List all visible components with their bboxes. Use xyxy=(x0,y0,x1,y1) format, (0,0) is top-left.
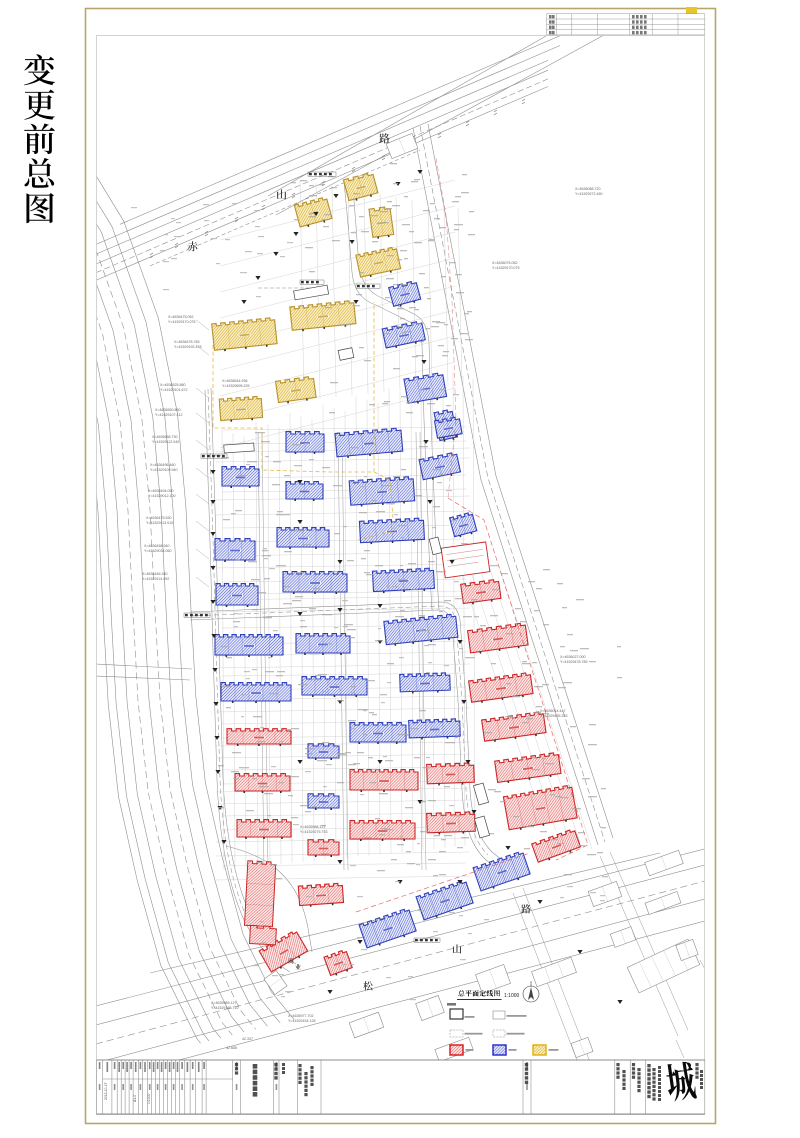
svg-text:42.337: 42.337 xyxy=(242,1037,253,1041)
svg-text:Y=41529695.225: Y=41529695.225 xyxy=(222,384,249,388)
svg-text:Y=41529107.412: Y=41529107.412 xyxy=(155,413,182,417)
svg-text:Y=41529478.789: Y=41529478.789 xyxy=(560,660,587,664)
svg-text:X=4635988.127: X=4635988.127 xyxy=(300,825,325,829)
svg-text:Y=41529101.672: Y=41529101.672 xyxy=(160,388,187,392)
svg-text:X=4635989.127: X=4635989.127 xyxy=(211,1001,236,1005)
svg-text:X=4636446.340: X=4636446.340 xyxy=(142,572,167,576)
svg-text:X=4636075.052: X=4636075.052 xyxy=(492,261,517,265)
svg-text:X=4636568.730: X=4636568.730 xyxy=(152,435,177,439)
svg-text:X=4636475.052: X=4636475.052 xyxy=(168,315,193,319)
svg-text:Y=41529170.075: Y=41529170.075 xyxy=(168,320,195,324)
svg-text:Y=41529109.940: Y=41529109.940 xyxy=(150,468,177,472)
svg-text:Y=41529272.460: Y=41529272.460 xyxy=(575,192,602,196)
svg-text:X=4636494.050: X=4636494.050 xyxy=(148,489,173,493)
svg-text:A1-0: A1-0 xyxy=(133,1095,137,1102)
svg-text:X=4636014.447: X=4636014.447 xyxy=(540,709,565,713)
svg-text:X=4636525.880: X=4636525.880 xyxy=(160,383,185,387)
svg-text:X=4636550.850: X=4636550.850 xyxy=(155,408,180,412)
svg-text:X=4636544.936: X=4636544.936 xyxy=(222,379,247,383)
svg-text:Y=41529012.100: Y=41529012.100 xyxy=(148,494,175,498)
svg-text:1:1000: 1:1000 xyxy=(504,993,520,999)
svg-text:Y=41529275.753: Y=41529275.753 xyxy=(300,830,327,834)
svg-text:1:1000: 1:1000 xyxy=(147,1094,151,1104)
svg-text:2012-10-17: 2012-10-17 xyxy=(104,1083,108,1100)
svg-text:Y=41529155.710: Y=41529155.710 xyxy=(211,1006,238,1010)
svg-text:X=4636088.720: X=4636088.720 xyxy=(575,187,600,191)
svg-text:42.685: 42.685 xyxy=(226,1046,237,1050)
svg-text:Y=41529113.010: Y=41529113.010 xyxy=(146,521,173,525)
svg-text:X=4636027.000: X=4636027.000 xyxy=(560,655,585,659)
svg-text:X=4636478.765: X=4636478.765 xyxy=(174,340,199,344)
svg-text:X=4636458.940: X=4636458.940 xyxy=(144,544,169,548)
svg-text:Y=41529154.128: Y=41529154.128 xyxy=(288,1019,315,1023)
svg-text:Y=41529192.478: Y=41529192.478 xyxy=(174,345,201,349)
svg-text:Y=41529435.253: Y=41529435.253 xyxy=(540,714,567,718)
svg-text:Y=41529114.092: Y=41529114.092 xyxy=(142,577,169,581)
svg-text:Y=41529170.075: Y=41529170.075 xyxy=(492,266,519,270)
svg-text:X=4635977.702: X=4635977.702 xyxy=(288,1014,313,1018)
svg-text:X=4636475.530: X=4636475.530 xyxy=(146,516,171,520)
svg-text:Y=41529112.040: Y=41529112.040 xyxy=(152,440,179,444)
svg-text:Y=41529034.060: Y=41529034.060 xyxy=(144,549,171,553)
svg-text:X=4636496.460: X=4636496.460 xyxy=(150,463,175,467)
